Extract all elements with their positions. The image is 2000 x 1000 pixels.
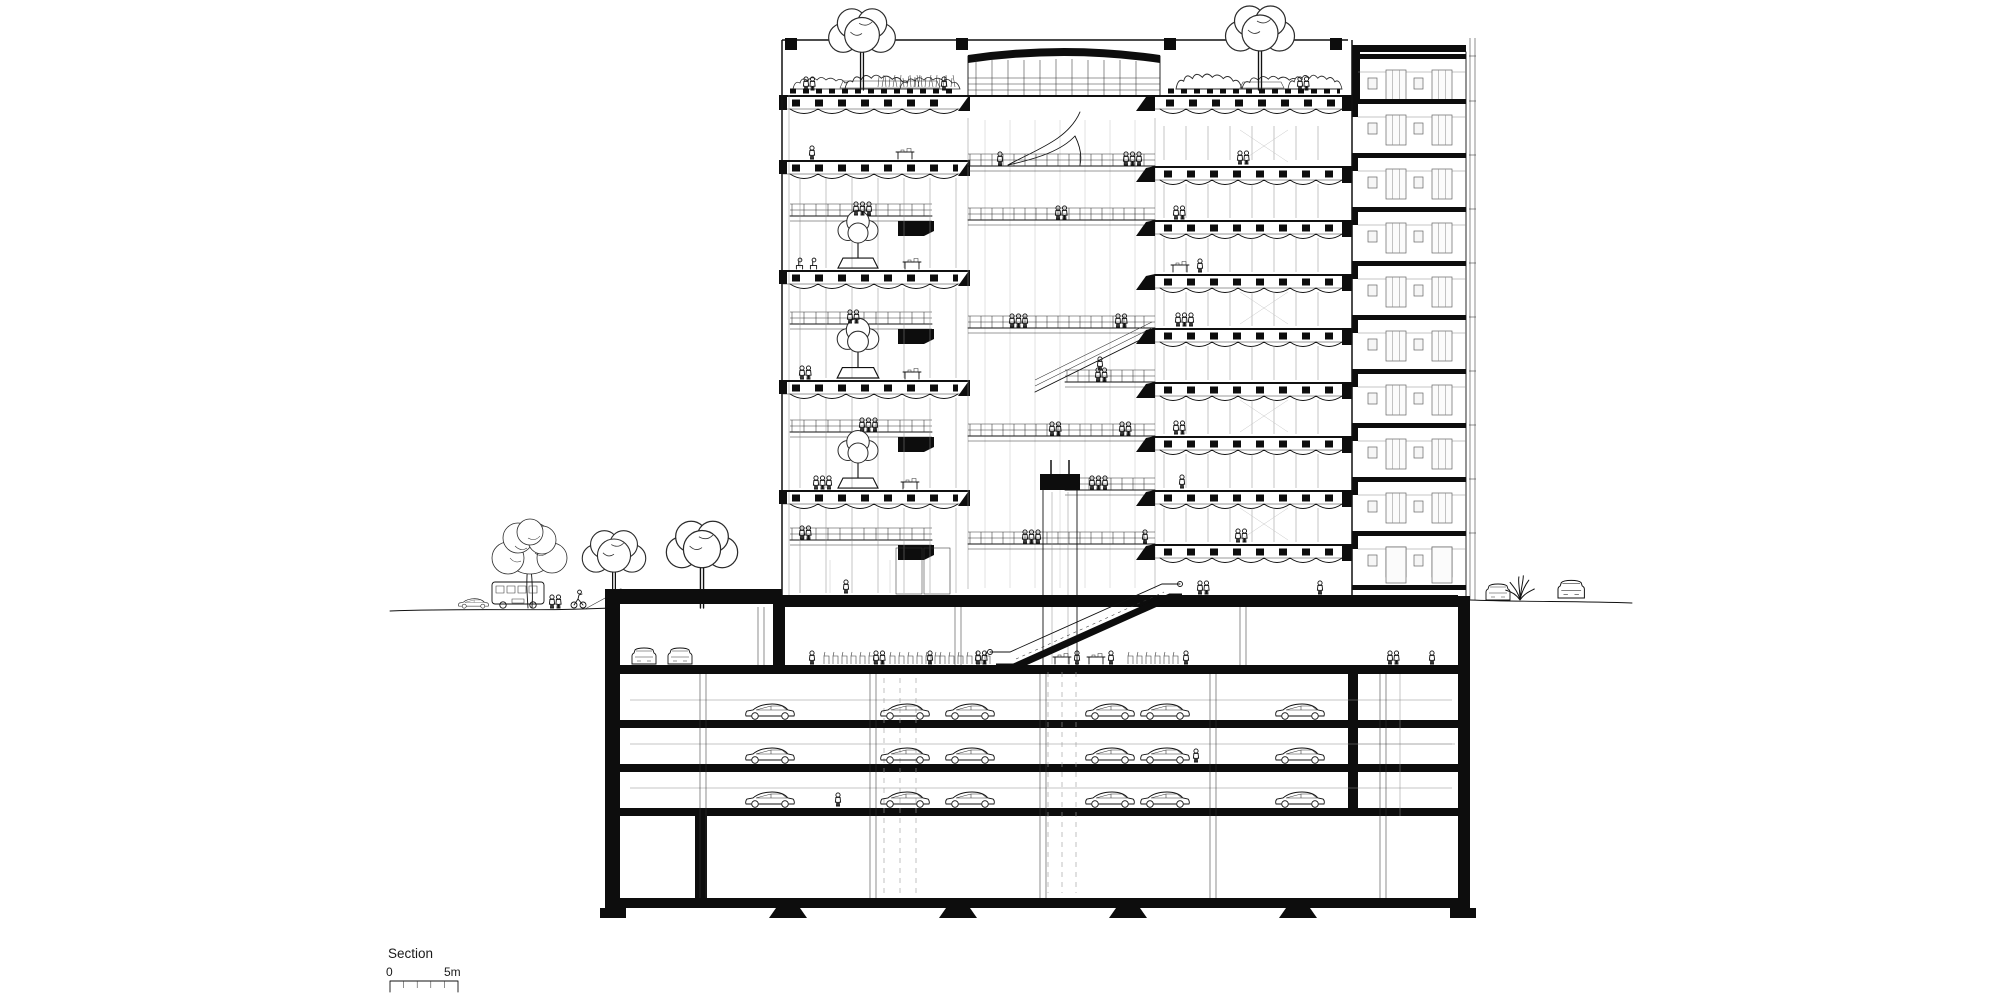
table <box>896 149 914 160</box>
chair-row <box>1128 652 1178 664</box>
person <box>843 580 848 593</box>
seated-people <box>796 258 816 269</box>
retaining-wall-left <box>605 589 620 898</box>
escalator <box>988 582 1183 668</box>
underground <box>600 582 1476 919</box>
parking-level-b3 <box>746 748 1325 763</box>
service-wall <box>1348 674 1358 816</box>
person <box>1193 749 1198 762</box>
person <box>809 651 814 664</box>
roof <box>779 6 1352 114</box>
people <box>1237 151 1249 164</box>
people <box>813 476 831 489</box>
roof-garden-right <box>1168 6 1342 91</box>
table <box>903 369 921 380</box>
car <box>458 599 488 608</box>
indoor-tree <box>837 318 879 378</box>
ground-level <box>620 581 1458 607</box>
tower-rail <box>1470 38 1475 600</box>
person <box>809 146 814 159</box>
terrain-line-left <box>390 589 621 611</box>
section-drawing: Section 0 5m <box>0 0 2000 1000</box>
left-wing-section <box>779 40 970 595</box>
indoor-tree <box>838 431 878 489</box>
section-label: Section <box>388 946 433 961</box>
b3-floor <box>620 764 1458 772</box>
person <box>927 651 932 664</box>
person <box>835 793 840 806</box>
diagonal-ramp <box>1035 322 1152 392</box>
person <box>1317 581 1322 594</box>
parked-car <box>1486 584 1510 600</box>
tower-parapet <box>1352 45 1466 52</box>
right-wing-section <box>1136 40 1352 595</box>
atrium <box>968 112 1155 668</box>
curved-ramp <box>1008 112 1081 165</box>
parking-level-b2 <box>746 704 1325 719</box>
b5-wall <box>695 816 707 898</box>
plaza-deck <box>620 589 782 604</box>
atrium-skylight <box>968 48 1160 95</box>
roof-slab <box>779 95 1352 114</box>
table <box>1171 262 1189 273</box>
concourse <box>809 651 1434 664</box>
ground-slab <box>782 595 1458 607</box>
scale-bar <box>390 981 458 992</box>
tower-entrance-door <box>1432 547 1452 583</box>
concourse-wall <box>773 604 785 665</box>
scale-end-label: 5m <box>444 965 461 979</box>
people <box>1235 529 1247 542</box>
tower-entrance-door <box>1386 547 1406 583</box>
table <box>903 259 921 270</box>
footing <box>1279 908 1317 918</box>
people <box>1173 206 1185 219</box>
scale-start-label: 0 <box>386 965 393 979</box>
cyclist <box>571 590 586 608</box>
people <box>873 651 885 664</box>
retaining-wall-right <box>1458 596 1470 898</box>
b1-floor <box>620 665 1458 674</box>
alcove-cars <box>632 648 692 664</box>
person <box>1179 475 1184 488</box>
footing <box>939 908 977 918</box>
footing <box>1109 908 1147 918</box>
people <box>1387 651 1399 664</box>
terrain-line-right <box>1470 600 1632 603</box>
tower-elevation <box>1352 38 1476 600</box>
person <box>1197 259 1202 272</box>
footing <box>769 908 807 918</box>
indoor-tree <box>838 211 878 269</box>
pedestrians <box>549 595 561 608</box>
stall <box>1087 651 1114 664</box>
chair-row <box>824 652 874 664</box>
foundation-slab <box>605 898 1470 908</box>
roof-garden-left <box>790 9 960 91</box>
street-tree-large <box>492 519 567 608</box>
b2-floor <box>620 720 1458 728</box>
bus <box>492 582 544 608</box>
person <box>1429 651 1434 664</box>
title-block: Section 0 5m <box>386 946 461 992</box>
people <box>1175 313 1193 326</box>
people <box>1173 421 1185 434</box>
stall <box>1053 651 1080 664</box>
background-linework <box>800 120 1135 593</box>
parked-car <box>1558 580 1584 598</box>
parking-level-b4 <box>746 792 1325 807</box>
site-right <box>1470 576 1632 603</box>
people <box>799 366 811 379</box>
table <box>901 479 919 490</box>
elevator-machine <box>1040 474 1080 490</box>
people <box>1197 581 1209 594</box>
b4-floor <box>620 808 1458 816</box>
drawing-sheet: Section 0 5m <box>0 0 2000 1000</box>
person <box>1183 651 1188 664</box>
